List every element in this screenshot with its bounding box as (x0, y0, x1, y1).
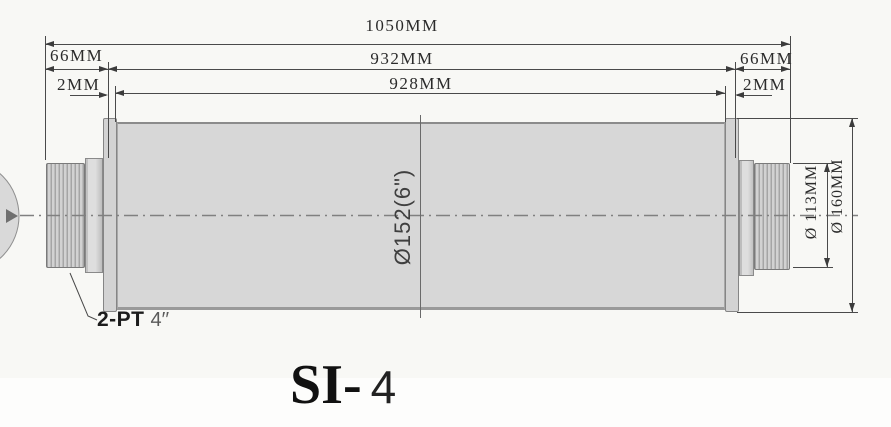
right-threaded-shaft (754, 163, 790, 270)
roller-body (117, 122, 725, 310)
dim-932: 932MM (362, 49, 442, 69)
left-detail-circle (0, 160, 19, 272)
dim-66-left: 66MM (50, 46, 103, 66)
left-end-cap (103, 118, 117, 312)
dim-body-diameter: Ø152(6") (390, 147, 416, 287)
dim-cap-diameter: Ø 160MM (828, 126, 848, 266)
dim-66-right: 66MM (740, 49, 793, 69)
dim-2-left: 2MM (57, 75, 100, 95)
circle-tip (6, 209, 18, 223)
left-threaded-shaft (46, 163, 85, 268)
thread-note-size: 4′′ (151, 309, 170, 331)
dim-928: 928MM (381, 74, 461, 94)
dim-shaft-diameter: Ø 113MM (802, 147, 822, 257)
right-end-cap (725, 118, 739, 312)
dim-2-right: 2MM (743, 75, 786, 95)
model-title: SI-4 (290, 353, 396, 417)
technical-drawing: 1050MM 932MM 928MM 66MM 66MM 2MM 2MM Ø15… (0, 0, 891, 427)
left-collar (85, 158, 103, 273)
model-title-number: 4 (371, 361, 397, 413)
dim-overall-length: 1050MM (362, 16, 442, 36)
model-title-prefix: SI- (290, 354, 362, 416)
thread-note-type: 2-PT (97, 308, 145, 331)
thread-note: 2-PT4′′ (97, 308, 169, 332)
paper-bottom-strip (0, 378, 891, 427)
right-collar (739, 160, 754, 276)
